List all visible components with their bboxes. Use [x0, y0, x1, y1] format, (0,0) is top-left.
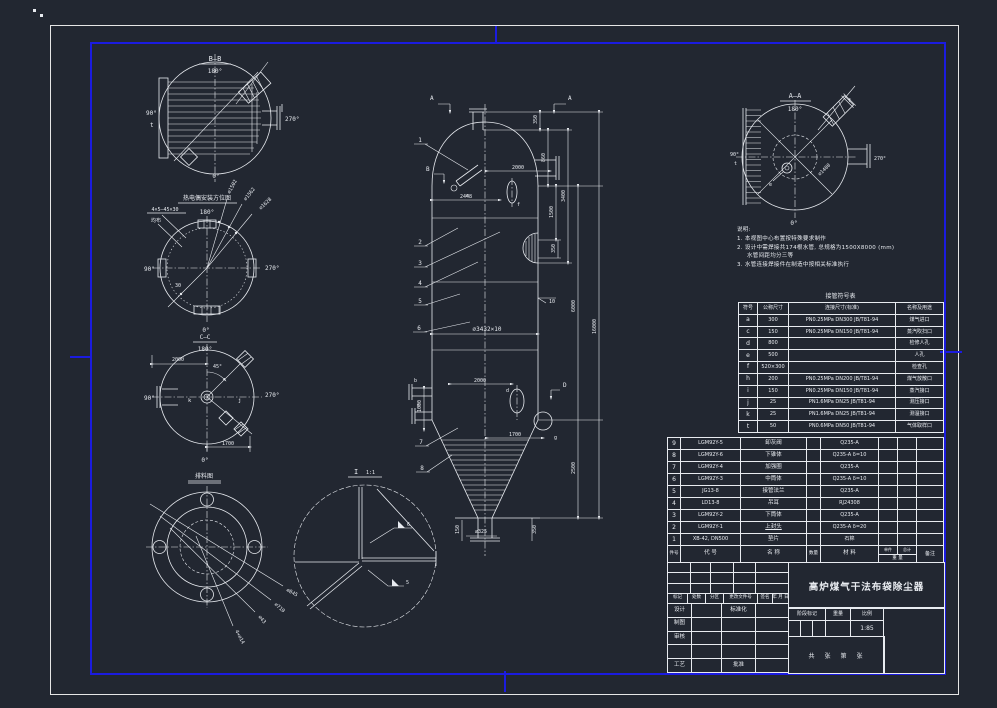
dim-350m: 350	[551, 244, 557, 253]
stage-row: 阶段标记 重量 比例	[788, 607, 884, 621]
table-cell: 2	[668, 522, 681, 534]
table-cell	[789, 362, 896, 374]
table-cell	[691, 563, 711, 573]
section-a-left: A	[430, 95, 434, 102]
orient-angle-right: 270°	[265, 265, 279, 272]
orient-angle-top: 180°	[200, 209, 214, 216]
flange-dim-bolts: 4×∅14	[233, 629, 245, 645]
table-cell	[917, 462, 944, 474]
flange-centerlines	[146, 486, 268, 608]
table-cell: 300	[758, 315, 789, 327]
table-cell: Q235-A	[821, 510, 879, 522]
view-aa-section: A—A 180° 90° t 270° 0° f ∅1400 e	[730, 86, 886, 227]
orient-dot	[235, 232, 237, 234]
note-line: 3. 水管连接焊接件在制造中按相关标准执行	[737, 261, 894, 270]
table-cell: 测压接口	[896, 398, 944, 410]
letter-d: d	[506, 388, 509, 394]
sheet-count: 共 张 第 张	[788, 636, 885, 674]
table-cell	[807, 462, 821, 474]
bb-hatched-nozzle-body	[238, 72, 270, 103]
orient-angle-bottom: 0°	[202, 327, 209, 334]
cc-angle-right: 270°	[265, 392, 279, 399]
scale-value: 1:85	[851, 621, 884, 637]
notes-block: 说明: 1. 本视图中心布置按特殊要求制作 2. 设计中需焊接共174根水管, …	[737, 226, 894, 270]
letter-f: f	[517, 202, 520, 208]
aa-right-nozzle	[848, 144, 870, 168]
bb-tube-rows	[168, 82, 261, 154]
nozzle-table-title: 接管符号表	[738, 289, 943, 301]
dim-6000: 6000	[571, 300, 577, 312]
table-cell: Q235-A δ=20	[821, 522, 879, 534]
balloon-8: 8	[420, 465, 424, 472]
balloon-7: 7	[419, 439, 423, 446]
view-detail-i: I 1:1 6 5	[294, 468, 436, 627]
table-cell: 7	[668, 462, 681, 474]
orient-dim-1502: ∅1502	[226, 179, 238, 195]
title-block-empty-cell	[883, 607, 945, 674]
dim-16000: 16000	[592, 319, 598, 334]
cc-title: C—C	[200, 334, 211, 341]
detail-scale: 1:1	[366, 470, 375, 476]
dim-10-leader	[538, 298, 546, 303]
table-cell: RJ24308	[821, 498, 879, 510]
section-b-flag-label: B	[426, 166, 430, 173]
table-cell: 测温接口	[896, 409, 944, 421]
table-cell	[898, 486, 917, 498]
flange-dim-845: ∅845	[285, 587, 298, 598]
bom-header-remark: 备注	[917, 546, 944, 563]
aa-left-flange	[743, 108, 746, 205]
aa-small-nozzle-leader	[773, 172, 783, 181]
table-cell: 4	[668, 498, 681, 510]
table-cell: LD13-8	[681, 498, 741, 510]
orient-note-even: 均布	[151, 217, 161, 224]
vessel-cone-nozzle-g	[534, 412, 552, 430]
table-cell	[692, 618, 722, 632]
table-cell	[668, 645, 692, 659]
table-cell	[756, 632, 789, 646]
table-cell	[898, 498, 917, 510]
dim-2448: 2448	[460, 194, 472, 200]
bom-header-band: 件号 代 号 名 称 数量 材 料 单件 总计 重 量 备注	[667, 545, 944, 563]
table-cell	[898, 462, 917, 474]
cc-dim-1700: 1700	[222, 441, 234, 447]
balloon-4: 4	[418, 280, 422, 287]
cc-label-j: j	[238, 398, 241, 404]
role-approve: 批准	[722, 659, 756, 673]
table-cell: 蒸汽吹扫口	[896, 327, 944, 339]
orient-lug-bottom-ticks	[202, 306, 219, 314]
table-cell	[879, 474, 898, 486]
aa-angle-right: 270°	[874, 156, 886, 162]
detail-weld-leader-2	[368, 570, 404, 586]
table-cell: Q235-A δ=10	[821, 474, 879, 486]
table-cell	[879, 438, 898, 450]
bom-header-total: 总计	[898, 546, 916, 554]
table-cell: 上封头	[741, 522, 807, 534]
table-cell: PN1.6MPa DN25 JB/T81-94	[789, 398, 896, 410]
table-cell	[692, 659, 722, 673]
table-cell	[668, 573, 691, 583]
dim-3400: 3400	[561, 190, 567, 202]
nozzle-table: 符号 公称尺寸 连接尺寸(标准) 名称及用途 a 300 PN0.25MPa D…	[738, 302, 944, 433]
detail-weld-symbol-2	[392, 579, 399, 586]
stage-box	[813, 621, 826, 637]
table-cell	[879, 522, 898, 534]
table-cell	[807, 498, 821, 510]
detail-weld-leader-1	[370, 528, 412, 543]
table-cell: 3	[668, 510, 681, 522]
table-cell	[722, 645, 756, 659]
notes-title: 说明:	[737, 226, 894, 235]
dim-shell: ∅3432×10	[473, 326, 502, 333]
table-cell: f	[739, 362, 758, 374]
section-a-right-flag	[554, 104, 566, 112]
section-a-left-flag	[438, 104, 450, 112]
table-cell: Q235-A	[821, 438, 879, 450]
section-d-flag-label: D	[563, 382, 567, 389]
table-cell: PN1.6MPa DN25 JB/T81-94	[789, 409, 896, 421]
table-cell: 蒸汽接口	[896, 386, 944, 398]
flange-title-underline	[188, 481, 221, 483]
aa-title: A—A	[789, 92, 802, 100]
title-block: 标记 处数 分区 更改文件号 签名 年 月 日 设计 标准化 制图 审核 工艺 …	[667, 562, 943, 672]
note-line: 1. 本视图中心布置按特殊要求制作	[737, 235, 894, 244]
dim-1700: 1700	[509, 432, 521, 438]
table-cell: 150	[758, 327, 789, 339]
detail-weld-size-2: 5	[406, 580, 409, 586]
table-cell: 吊耳	[741, 498, 807, 510]
balloon-1: 1	[418, 137, 422, 144]
vessel-dome-nozzle-end	[451, 185, 457, 191]
orient-dim-1628: ∅1628	[258, 197, 273, 212]
dim-2000m: 2000	[474, 378, 486, 384]
table-cell: 加强圈	[741, 462, 807, 474]
table-cell: Q235-A	[821, 486, 879, 498]
bom-header-mat: 材 料	[821, 546, 879, 563]
dim-1000: 1000	[417, 400, 423, 412]
cc-diagonals	[207, 364, 252, 434]
note-line: 水管间距均分三等	[737, 252, 894, 261]
orient-dot	[228, 226, 230, 228]
aa-dim-1400: ∅1400	[817, 163, 832, 178]
table-cell	[807, 474, 821, 486]
table-cell	[756, 563, 789, 573]
view-cc-section: C—C 180° 2000 45° 1700 k j 90° 270° 0°	[144, 334, 279, 464]
table-cell	[917, 510, 944, 522]
balloon-6: 6	[417, 325, 421, 332]
dim-350t: 350	[533, 115, 539, 124]
table-cell	[917, 450, 944, 462]
table-cell	[917, 486, 944, 498]
table-cell	[807, 522, 821, 534]
table-cell: a	[739, 315, 758, 327]
table-cell: h	[739, 374, 758, 386]
table-cell	[917, 474, 944, 486]
bb-hatched-nozzle	[238, 72, 270, 103]
table-cell: k	[739, 409, 758, 421]
stage-boxes-row: 1:85	[788, 620, 884, 637]
table-cell	[879, 498, 898, 510]
bb-angle-right: 270°	[285, 116, 299, 123]
vessel-dome-nozzle	[456, 165, 482, 186]
table-cell	[722, 618, 756, 632]
detail-weld-symbol-1	[398, 521, 405, 528]
orient-title: 热电偶安装方位图	[183, 194, 231, 202]
table-cell	[879, 450, 898, 462]
table-cell: 气体取样口	[896, 421, 944, 433]
dim-2500: 2500	[571, 462, 577, 474]
role-process: 工艺	[668, 659, 692, 673]
fold-mark	[33, 9, 36, 12]
aa-label-t: t	[734, 161, 737, 167]
table-cell	[668, 563, 691, 573]
table-cell	[692, 632, 722, 646]
cc-nozzle-se1	[219, 411, 233, 425]
table-cell	[691, 573, 711, 583]
table-cell: 25	[758, 398, 789, 410]
table-cell	[807, 450, 821, 462]
role-design: 设计	[668, 604, 692, 618]
nozzle-header: 连接尺寸(标准)	[789, 303, 896, 315]
table-cell: 煤气放散口	[896, 374, 944, 386]
table-cell: 下锥体	[741, 450, 807, 462]
role-check: 审核	[668, 632, 692, 646]
balloon-6-leader	[413, 322, 470, 332]
bom-header-name: 名 称	[741, 546, 807, 563]
role-standard: 标准化	[722, 604, 756, 618]
orient-dot	[180, 293, 182, 295]
note-line: 2. 设计中需焊接共174根水管, 总规格为1500X8000 (mm)	[737, 244, 894, 253]
detail-title: I	[354, 468, 358, 476]
table-cell: 800	[758, 338, 789, 350]
table-cell: LGM92Y-3	[681, 474, 741, 486]
balloon-3-leader	[414, 232, 500, 267]
nozzle-header: 符号	[739, 303, 758, 315]
table-cell	[692, 604, 722, 618]
fold-mark	[40, 14, 43, 17]
table-cell: j	[739, 398, 758, 410]
vessel-ext-lines	[483, 112, 603, 518]
table-cell: c	[739, 327, 758, 339]
bb-angle-left: 90°	[146, 110, 157, 117]
vessel-side-port	[523, 233, 538, 263]
table-cell	[789, 338, 896, 350]
table-cell: 500	[758, 350, 789, 362]
dim-860: 860	[541, 153, 547, 162]
table-cell: PN0.25MPa DN200 JB/T81-94	[789, 374, 896, 386]
cc-angle-top: 180°	[198, 346, 212, 353]
roles-grid: 设计 标准化 制图 审核 工艺 批准	[667, 603, 789, 673]
table-cell: 5	[668, 486, 681, 498]
table-cell: t	[739, 421, 758, 433]
drawing-title: 高炉煤气干法布袋除尘器	[788, 562, 945, 609]
bom-table: 9 LGM92Y-5 卸灰阀 Q235-A 8 LGM92Y-6 下锥体 Q23…	[667, 437, 944, 546]
dim-325: ∅325	[475, 529, 487, 535]
table-cell	[756, 604, 789, 618]
table-cell: e	[739, 350, 758, 362]
dim-150: 150	[455, 525, 461, 534]
view-orientation: 热电偶安装方位图 180° ∅1502 ∅1562 ∅1628 4×5—45×3…	[144, 179, 279, 334]
table-cell	[711, 573, 734, 583]
table-cell: 中筒体	[741, 474, 807, 486]
table-cell	[789, 350, 896, 362]
table-cell: 接管法兰	[741, 486, 807, 498]
table-cell: 卸灰阀	[741, 438, 807, 450]
section-d-flag	[551, 390, 560, 398]
letter-g: g	[554, 435, 557, 441]
vessel-top-nozzle	[469, 109, 487, 130]
table-cell: 200	[758, 374, 789, 386]
table-cell	[734, 573, 756, 583]
item-balloons: 1 2 3 4 5 6 7 8	[413, 137, 500, 472]
table-cell	[756, 645, 789, 659]
table-cell: 150	[758, 386, 789, 398]
table-cell: PN0.25MPa DN150 JB/T81-94	[789, 386, 896, 398]
cc-label-k: k	[188, 398, 192, 404]
table-cell: 下筒体	[741, 510, 807, 522]
cad-canvas: { "views": { "bb": {"title":"B—B","deg18…	[0, 0, 997, 708]
table-cell: JG13-8	[681, 486, 741, 498]
balloon-5: 5	[418, 298, 422, 305]
orient-note-size: 4×5—45×30	[151, 207, 178, 213]
dim-2000t: 2000	[512, 165, 524, 171]
table-cell	[917, 522, 944, 534]
detail-weld-size-1: 6	[407, 522, 410, 528]
balloon-3: 3	[418, 260, 422, 267]
table-cell: PN0.25MPa DN300 JB/T81-94	[789, 315, 896, 327]
aa-small-nozzle	[782, 163, 792, 173]
table-cell: PN0.25MPa DN150 JB/T81-94	[789, 327, 896, 339]
view-bb-section: B—B 180° 270° 90° t 0°	[146, 54, 299, 182]
table-cell	[898, 522, 917, 534]
orient-dot	[218, 221, 220, 223]
orient-note-leaders	[158, 215, 186, 247]
table-cell	[879, 462, 898, 474]
table-cell: i	[739, 386, 758, 398]
table-cell: LGM92Y-6	[681, 450, 741, 462]
table-cell: 8	[668, 450, 681, 462]
balloon-4-leader	[414, 262, 478, 287]
cc-dim-2000: 2000	[172, 357, 184, 363]
cc-angle-bottom: 0°	[201, 457, 208, 464]
bom-header-weight-group: 单件 总计 重 量	[879, 546, 917, 563]
detail-boundary-circle	[294, 485, 436, 627]
stage-box	[789, 621, 801, 637]
section-b-flag	[434, 174, 444, 182]
table-cell: 检查孔	[896, 362, 944, 374]
table-cell: 煤气进口	[896, 315, 944, 327]
table-cell	[722, 632, 756, 646]
table-cell	[807, 486, 821, 498]
aa-label-f: f	[848, 98, 851, 104]
table-cell	[917, 498, 944, 510]
table-cell	[826, 621, 851, 637]
bom-header-code: 代 号	[681, 546, 741, 563]
vessel-upper-right-nozzle	[535, 156, 559, 180]
flange-dim-43: ∅43	[256, 614, 266, 625]
vessel-bottom-outlet	[455, 518, 540, 541]
table-cell	[898, 510, 917, 522]
dim-1500: 1500	[549, 206, 555, 218]
table-cell	[917, 438, 944, 450]
table-cell	[807, 510, 821, 522]
table-cell	[692, 645, 722, 659]
table-cell: 9	[668, 438, 681, 450]
bom-header-qty: 数量	[807, 546, 821, 563]
cc-angle-arc	[207, 372, 225, 380]
cc-nozzle-se1-body	[219, 411, 233, 425]
table-cell: LGM92Y-1	[681, 522, 741, 534]
table-cell: LGM92Y-5	[681, 438, 741, 450]
nozzle-header: 名称及用途	[896, 303, 944, 315]
table-cell: 50	[758, 421, 789, 433]
aa-small-nozzle-inner	[785, 166, 789, 170]
section-a-right: A	[568, 95, 572, 102]
table-cell	[879, 486, 898, 498]
letter-b: b	[414, 378, 417, 384]
dim-bottom-lines	[462, 518, 532, 541]
table-cell: 520×300	[758, 362, 789, 374]
table-cell: 检修人孔	[896, 338, 944, 350]
nozzle-header: 公称尺寸	[758, 303, 789, 315]
bom-header-unit: 单件	[879, 546, 898, 554]
aa-centerlines	[736, 100, 856, 218]
table-cell: 6	[668, 474, 681, 486]
aa-label-e: e	[769, 182, 772, 188]
cc-angle-45: 45°	[213, 364, 222, 370]
view-bottom-flange: 排料图 ∅845 ∅710 ∅43 4×∅14	[146, 472, 299, 645]
table-cell: PN0.6MPa DN50 JB/T81-94	[789, 421, 896, 433]
balloon-2: 2	[418, 239, 422, 246]
table-cell	[898, 438, 917, 450]
table-cell: Q235-A δ=10	[821, 450, 879, 462]
dim-10: 10	[549, 299, 555, 305]
table-cell	[756, 618, 789, 632]
dim-350b: 350	[532, 525, 538, 534]
table-cell	[898, 450, 917, 462]
orient-dim-1562: ∅1562	[243, 187, 257, 203]
table-cell	[807, 438, 821, 450]
bb-right-nozzle	[262, 104, 282, 130]
table-cell: LGM92Y-4	[681, 462, 741, 474]
vessel-elevation: A A B D e f d b c	[409, 95, 603, 556]
aa-angle-left: 90°	[730, 152, 739, 158]
table-cell	[879, 510, 898, 522]
bb-label-t: t	[150, 122, 154, 129]
table-cell	[756, 573, 789, 583]
table-cell	[711, 563, 734, 573]
orient-angle-left: 90°	[144, 266, 155, 273]
flange-title: 排料图	[195, 472, 213, 480]
bb-angle-bottom: 0°	[212, 173, 219, 180]
table-cell: Q235-A	[821, 462, 879, 474]
table-cell	[898, 474, 917, 486]
table-cell	[734, 563, 756, 573]
table-cell: d	[739, 338, 758, 350]
stage-box	[801, 621, 813, 637]
bom-header-no: 件号	[668, 546, 681, 563]
table-cell: 25	[758, 409, 789, 421]
flange-dim-710: ∅710	[273, 602, 286, 614]
flange-leader-lines	[150, 504, 283, 626]
table-cell: LGM92Y-2	[681, 510, 741, 522]
orient-angle-30: 30	[175, 283, 181, 289]
cc-angle-left: 90°	[144, 395, 155, 402]
table-cell: 人孔	[896, 350, 944, 362]
cc-centerlines	[152, 344, 262, 452]
table-cell	[756, 659, 789, 673]
